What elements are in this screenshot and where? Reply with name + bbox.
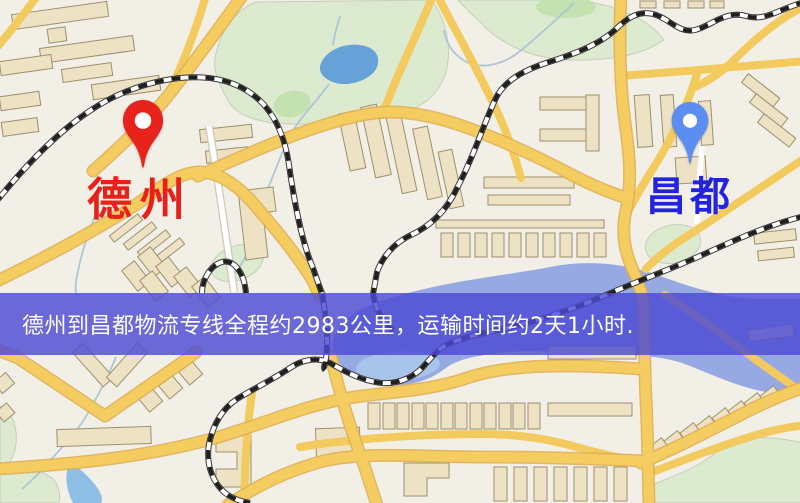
route-info-banner: 德州到昌都物流专线全程约2983公里，运输时间约2天1小时. [0,293,800,355]
destination-pin-shape [672,102,709,164]
route-info-text: 德州到昌都物流专线全程约2983公里，运输时间约2天1小时. [0,308,634,340]
origin-pin-shape [123,100,163,168]
origin-label: 德州 [87,177,193,222]
basemap [0,0,800,503]
destination-label: 昌都 [646,177,734,217]
map-view[interactable]: 德州 昌都 德州到昌都物流专线全程约2983公里，运输时间约2天1小时. [0,0,800,503]
destination-pin-icon[interactable] [669,101,711,165]
origin-pin-icon[interactable] [120,99,166,169]
